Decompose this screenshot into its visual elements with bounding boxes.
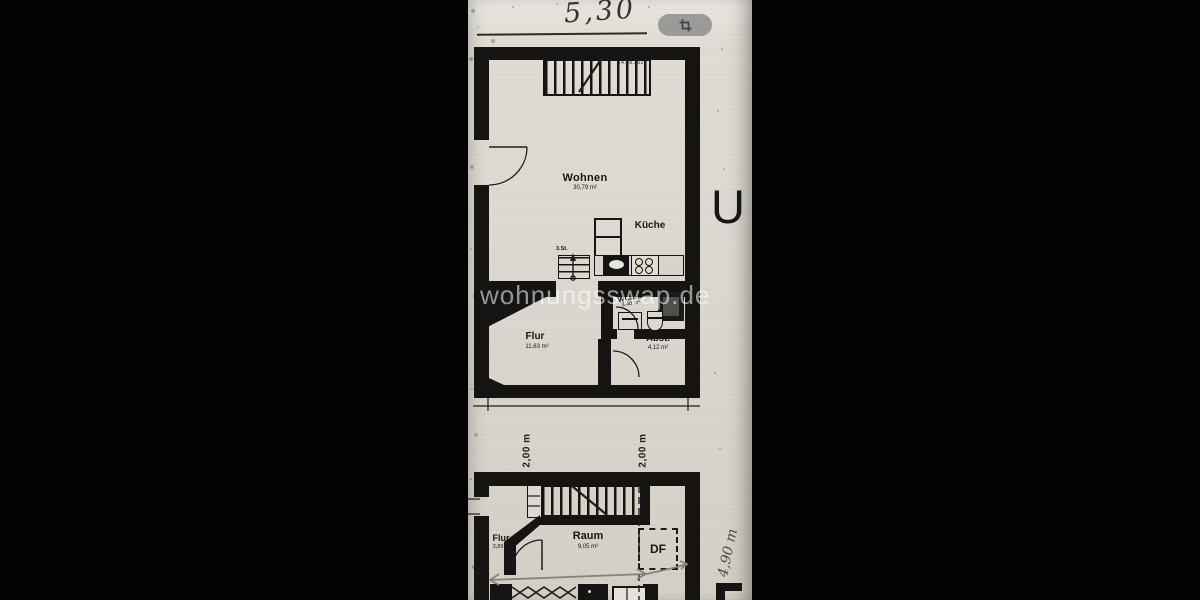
floorplan-scan: 5,30 14.08.2022 bbox=[468, 0, 752, 600]
letterbox-right bbox=[752, 0, 1200, 600]
photo-viewer: 5,30 14.08.2022 bbox=[0, 0, 1200, 600]
watermark: wohnungsswap.de bbox=[480, 280, 710, 311]
letterbox-left bbox=[0, 0, 468, 600]
